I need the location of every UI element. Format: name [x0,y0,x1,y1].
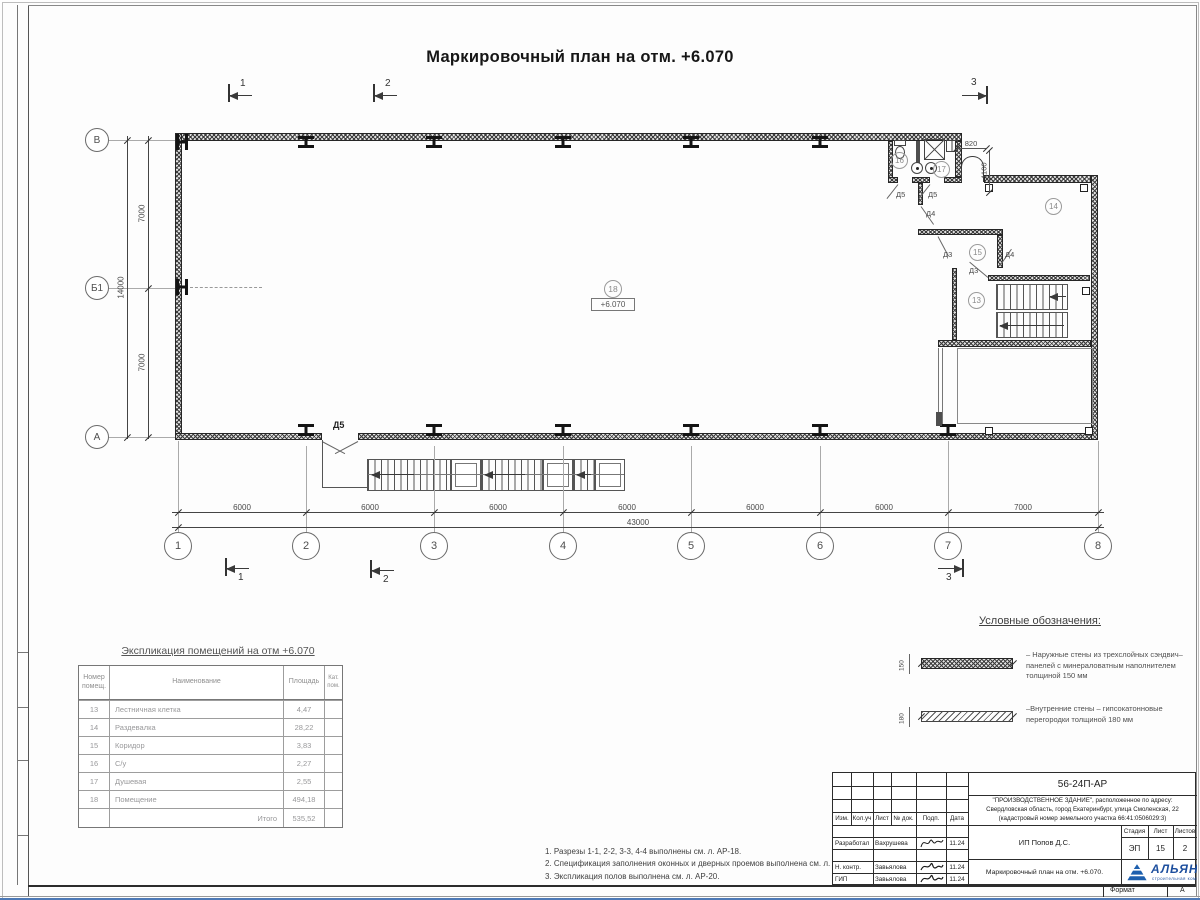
format-label: Формат [1110,887,1135,894]
grid-bubble: 5 [677,532,705,560]
dim-label: 6000 [350,503,390,512]
column-icon [555,136,571,148]
elevation-mark: +6.070 [591,298,635,311]
porch-line [322,487,368,488]
legend-thickness-label: 180 [899,704,906,734]
cell-number: 18 [79,791,109,808]
grid-bubble: 2 [292,532,320,560]
tb-col-header: Подп. [916,812,946,825]
grid-bubble: 7 [934,532,962,560]
wall-stair-bottom [938,340,1091,347]
section-arrow [227,568,249,569]
tb-sheets-value: 2 [1173,837,1197,859]
format-cell-line [1103,885,1104,897]
tb-sheet-label: Лист [1148,825,1173,837]
stair-direction-arrow [577,474,591,475]
tb-doc-number: 56-24П-АР [968,773,1197,795]
grid-bubble: 1 [164,532,192,560]
wall-stair-top [988,275,1090,281]
wall-wc-bottom [944,177,962,183]
scan-edge-line [0,898,1200,900]
cell-name: Душевая [109,773,283,790]
tb-date: 11.24 [946,837,968,849]
tb-name: Вахрушева [873,837,918,849]
cell-number [79,809,109,827]
table-header-row: Номерпомещ. Наименование Площадь Кат.пом… [79,666,342,700]
door-label: Д3 [943,250,952,259]
tb-address-line: (кадастровый номер земельного участка 66… [970,815,1195,824]
column-icon [683,136,699,148]
door-label: Д3 [969,266,978,275]
axis-extension [178,441,179,532]
tb-sheet-name: Маркировочный план на отм. +6.070. [970,859,1119,886]
column-header: Наименование [109,666,283,699]
tb-stage-value: ЭП [1121,837,1148,859]
cell-number: 14 [79,719,109,736]
legend-item-text: –Внутренние стены – гипсокатонновые пере… [1026,704,1198,725]
dim-label-820: 820 [953,139,989,148]
explication-table: Номерпомещ. Наименование Площадь Кат.пом… [78,665,343,828]
cell-number: 17 [79,773,109,790]
legend-wall-sample-exterior [921,658,1013,669]
room-tag: 14 [1045,198,1062,215]
porch-line [322,440,323,488]
frame-top [28,5,1196,6]
cell-name: С/у [109,755,283,772]
wall-stair-left [952,268,957,340]
axis-extension [948,441,949,532]
room-tag: 16 [891,152,908,169]
cell-category [324,791,342,808]
tb-role: Разработал [833,837,875,849]
section-mark-bar [962,559,964,577]
legend-wall-sample-interior [921,711,1013,722]
attach-column-line [17,5,18,885]
cell-category [324,719,342,736]
axis-extension [109,140,175,141]
grid-bubble: 3 [420,532,448,560]
table-row: 15 Коридор 3,83 [79,736,342,754]
column-icon [176,134,188,150]
dim-label: 6000 [222,503,262,512]
table-row: 16 С/у 2,27 [79,754,342,772]
cell-name: Помещение [109,791,283,808]
wall-annex-top [984,175,1091,183]
axis-extension [563,446,564,532]
tb-role: Н. контр. [833,861,875,873]
column-header: Номерпомещ. [79,666,109,699]
column-icon [940,424,956,436]
notes-block: 1. Разрезы 1-1, 2-2, 3-3, 4-4 выполнены … [545,846,875,883]
title-block: Изм. Кол.уч Лист № док. Подп. Дата Разра… [832,772,1196,885]
tb-stage-label: Стадия [1121,825,1148,837]
cell-name: Коридор [109,737,283,754]
cell-area: 2,27 [283,755,324,772]
grid-bubble: 6 [806,532,834,560]
stair-direction-arrow [485,474,525,475]
dim-label: 6000 [607,503,647,512]
stair-platform [595,459,625,491]
door-label: Д4 [926,209,935,218]
shower-tray-icon [924,139,945,160]
wall-wc-divider [916,141,920,163]
legend-title: Условные обозначения: [960,615,1120,627]
frame-right [1196,5,1197,897]
dim-label-total: 14000 [117,268,126,308]
dim-line-left-total [127,136,128,439]
signature [918,836,944,854]
section-label: 2 [385,78,391,89]
dim-label-total: 43000 [608,518,668,527]
cell-name: Лестничная клетка [109,701,283,718]
attach-cell-divider [17,760,28,761]
legend-thickness-label: 150 [899,651,906,681]
axis-extension [109,437,175,438]
grid-bubble: Б1 [85,276,109,300]
section-label: 3 [971,77,977,88]
section-arrow [372,570,394,571]
tb-sheet-value: 15 [1148,837,1173,859]
column-header: Кат.пом. [324,666,342,699]
tb-sheets-label: Листов [1173,825,1197,837]
tb-col-header: Кол.уч [851,812,873,825]
axis-dash-line [190,287,262,288]
legend-dim-line [909,707,910,727]
tb-address: "ПРОИЗВОДСТВЕННОЕ ЗДАНИЕ", расположенное… [970,797,1195,824]
tb-client: ИП Попов Д.С. [968,825,1121,859]
attach-cell-divider [17,652,28,653]
note-line: 2. Спецификация заполнения оконных и две… [545,858,875,870]
column-icon [298,424,314,436]
column-icon [298,136,314,148]
section-label: 3 [946,572,952,583]
floor-opening-outline [957,348,1093,424]
tb-col-header: Дата [946,812,968,825]
total-label: Итого [109,809,283,827]
attach-cell-divider [17,707,28,708]
table-row: 14 Раздевалка 28,22 [79,718,342,736]
format-cell-line [1167,885,1168,897]
cell-area: 2,55 [283,773,324,790]
column-icon [812,424,828,436]
dim-label: 6000 [478,503,518,512]
door-label: Д5 [928,190,937,199]
page-title: Маркировочный план на отм. +6.070 [360,48,800,67]
cell-category [324,773,342,790]
grid-bubble: А [85,425,109,449]
total-value: 535,52 [283,809,324,827]
tb-date: 11.24 [946,861,968,873]
section-arrow [375,95,397,96]
drawing-sheet: Маркировочный план на отм. +6.070 [0,0,1200,900]
dim-label: 7000 [138,196,147,232]
column-base-icon [1082,287,1090,295]
grid-bubble: 8 [1084,532,1112,560]
column-icon [426,136,442,148]
tb-col-header: Лист [873,812,891,825]
note-line: 3. Экспликация полов выполнена см. л. АР… [545,871,875,883]
tb-date: 11.24 [946,873,968,885]
cell-category [324,701,342,718]
column-icon [812,136,828,148]
cell-number: 13 [79,701,109,718]
axis-extension [1098,441,1099,532]
door-label: Д4 [1005,250,1014,259]
room-tag: 17 [933,161,950,178]
column-icon [683,424,699,436]
wall-partition-horizontal [918,229,1003,235]
tb-name: Завьялова [873,873,918,885]
dim-label: 7000 [138,345,147,381]
cell-number: 16 [79,755,109,772]
tb-role: ГИП [833,873,875,885]
room-tag: 18 [604,280,622,298]
grid-bubble: В [85,128,109,152]
section-arrow [230,95,252,96]
stair-direction-arrow [372,474,414,475]
column-icon [555,424,571,436]
cell-category [324,809,342,827]
axis-extension [306,446,307,532]
table-total-row: Итого 535,52 [79,808,342,827]
dim-line-bottom-total [172,527,1104,528]
table-row: 18 Помещение 494,18 [79,790,342,808]
railing-line [942,348,943,424]
grid-bubble: 4 [549,532,577,560]
room-tag: 13 [968,292,985,309]
dim-label: 6000 [735,503,775,512]
stair-landing [451,459,481,491]
column-icon [426,424,442,436]
dim-line-bottom [172,512,1104,513]
stair-direction-arrow [1050,296,1066,297]
dim-line-820 [956,148,986,149]
axis-extension [434,446,435,532]
section-mark-bar [986,86,988,104]
section-label: 2 [383,574,389,585]
tb-name: Завьялова [873,861,918,873]
cell-name: Раздевалка [109,719,283,736]
tb-col-header: Изм. [833,812,851,825]
dim-line-1100 [989,150,990,192]
cell-area: 494,18 [283,791,324,808]
frame-left [28,5,29,897]
cell-category [324,755,342,772]
tb-address-line: "ПРОИЗВОДСТВЕННОЕ ЗДАНИЕ", расположенное… [970,797,1195,806]
section-label: 1 [238,572,244,583]
logo-cell: АЛЬЯНС строительная компания [1121,859,1197,886]
dim-label-1100: 1100 [980,153,989,189]
axis-extension [820,446,821,532]
column-base-icon [985,427,993,435]
alliance-logo-icon [1125,862,1149,886]
legend-item-text: – Наружные стены из трехслойных сэндвич–… [1026,650,1198,682]
legend-dim-line [909,654,910,674]
section-arrow [962,95,986,96]
stair-landing [543,459,573,491]
table-row: 17 Душевая 2,55 [79,772,342,790]
column-base-icon [1080,184,1088,192]
attach-cell-divider [17,835,28,836]
format-value: А [1180,887,1185,894]
column-icon [176,279,188,295]
dim-label: 7000 [1003,503,1043,512]
column-base-icon [1085,427,1093,435]
railing-post [936,412,942,426]
cell-area: 28,22 [283,719,324,736]
stair-direction-arrow [1000,325,1064,326]
table-row: 13 Лестничная клетка 4,47 [79,700,342,718]
signature [918,872,944,890]
door-label: Д5 [896,190,905,199]
explication-title: Экспликация помещений на отм +6.070 [98,645,338,657]
section-arrow [938,568,962,569]
cell-category [324,737,342,754]
washbasin-icon [911,162,923,174]
note-line: 1. Разрезы 1-1, 2-2, 3-3, 4-4 выполнены … [545,846,875,858]
section-label: 1 [240,78,246,89]
column-header: Площадь [283,666,324,699]
dim-label: 6000 [864,503,904,512]
tb-col-header: № док. [891,812,916,825]
axis-extension [691,446,692,532]
cell-area: 3,83 [283,737,324,754]
tb-address-line: Свердловская область, город Екатеринбург… [970,806,1195,815]
wall-wc-bottom [888,177,898,183]
logo-text: АЛЬЯНС [1151,862,1197,876]
room-tag: 15 [969,244,986,261]
cell-area: 4,47 [283,701,324,718]
cell-number: 15 [79,737,109,754]
logo-subtext: строительная компания [1152,876,1197,881]
door-label: Д5 [333,420,344,430]
